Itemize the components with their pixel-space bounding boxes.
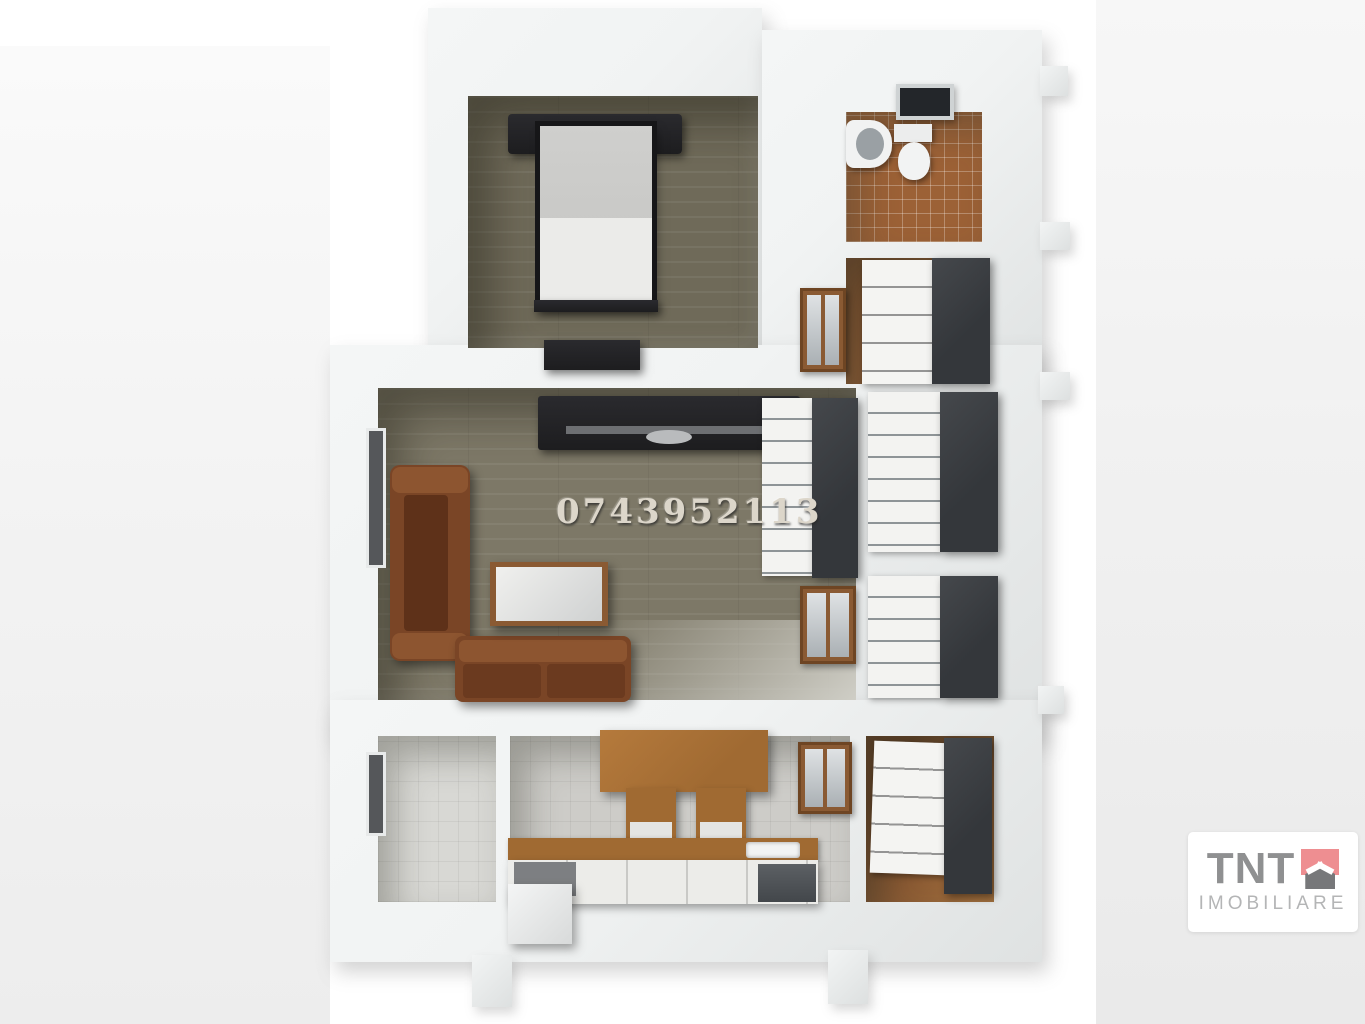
kitchen-end-cabinet <box>508 884 572 944</box>
closet-1-dark-cabinet <box>940 392 998 552</box>
kitchen-window <box>798 742 852 814</box>
bed-footboard <box>534 300 658 312</box>
bedroom-dresser <box>544 340 640 370</box>
bathroom-2-window <box>366 752 386 836</box>
wall-stub-bottom-2 <box>828 950 868 1004</box>
closet-2-panel-unit <box>868 576 940 698</box>
sofa-vertical <box>390 465 470 661</box>
wall-stub-right-2 <box>1040 372 1070 400</box>
living-left-window <box>366 428 386 568</box>
toilet-tank <box>894 124 932 142</box>
window-pane <box>805 749 823 807</box>
house-icon-chevron <box>1304 859 1336 875</box>
living-wardrobe-white <box>762 398 812 576</box>
wall-stub-right-1 <box>1040 222 1070 250</box>
bed-duvet <box>540 218 652 304</box>
couch-cushion <box>547 664 625 698</box>
kitchen-sink <box>746 842 800 858</box>
sofa-armrest-top <box>392 467 468 493</box>
wall-stub-bottom-1 <box>472 955 512 1007</box>
door-pane <box>807 295 821 365</box>
hallway-tall-cabinet <box>932 258 990 384</box>
coffee-table <box>490 562 608 626</box>
closet-1-panel-unit <box>868 392 940 552</box>
window-pane <box>807 593 826 657</box>
wall-stub-top-right <box>1040 66 1068 96</box>
tv-unit-detail <box>646 430 692 444</box>
toilet-bowl <box>898 142 930 180</box>
door-pane <box>825 295 839 365</box>
living-glazed-window <box>800 586 856 664</box>
real-estate-render-page: 0743952113 TNT IMOBILIARE <box>0 0 1365 1024</box>
wall-stub-right-3 <box>1038 686 1064 714</box>
coffee-table-top <box>496 567 602 621</box>
logo-row: TNT <box>1207 849 1340 889</box>
entry-tall-cabinet <box>944 738 992 894</box>
closet-2-dark-cabinet <box>940 576 998 698</box>
floor-plan-render: 0743952113 <box>0 0 1365 1024</box>
agency-logo-card: TNT IMOBILIARE <box>1188 832 1358 932</box>
entry-wardrobe-white <box>870 741 953 876</box>
kitchen-chair <box>626 788 676 844</box>
living-wardrobe-dark <box>812 398 858 578</box>
house-icon <box>1301 849 1339 889</box>
hallway-glazed-door <box>800 288 846 372</box>
bathroom-skylight <box>896 84 954 120</box>
kitchen-chair <box>696 788 746 844</box>
couch-backrest <box>459 640 627 662</box>
logo-subtitle-text: IMOBILIARE <box>1199 893 1348 915</box>
logo-brand-text: TNT <box>1207 849 1296 889</box>
watermark-phone-number: 0743952113 <box>556 492 816 532</box>
window-pane <box>830 593 849 657</box>
couch-horizontal <box>455 636 631 702</box>
sofa-seat <box>404 495 448 631</box>
kitchen-table <box>600 730 768 792</box>
kitchen-dishwasher <box>758 864 816 902</box>
window-pane <box>827 749 845 807</box>
tv-media-unit <box>538 396 800 450</box>
couch-cushion <box>463 664 541 698</box>
bathroom-sink <box>846 120 892 168</box>
hallway-dresser <box>862 260 934 384</box>
bathroom-2-floor <box>378 736 496 902</box>
sink-basin <box>856 128 884 160</box>
